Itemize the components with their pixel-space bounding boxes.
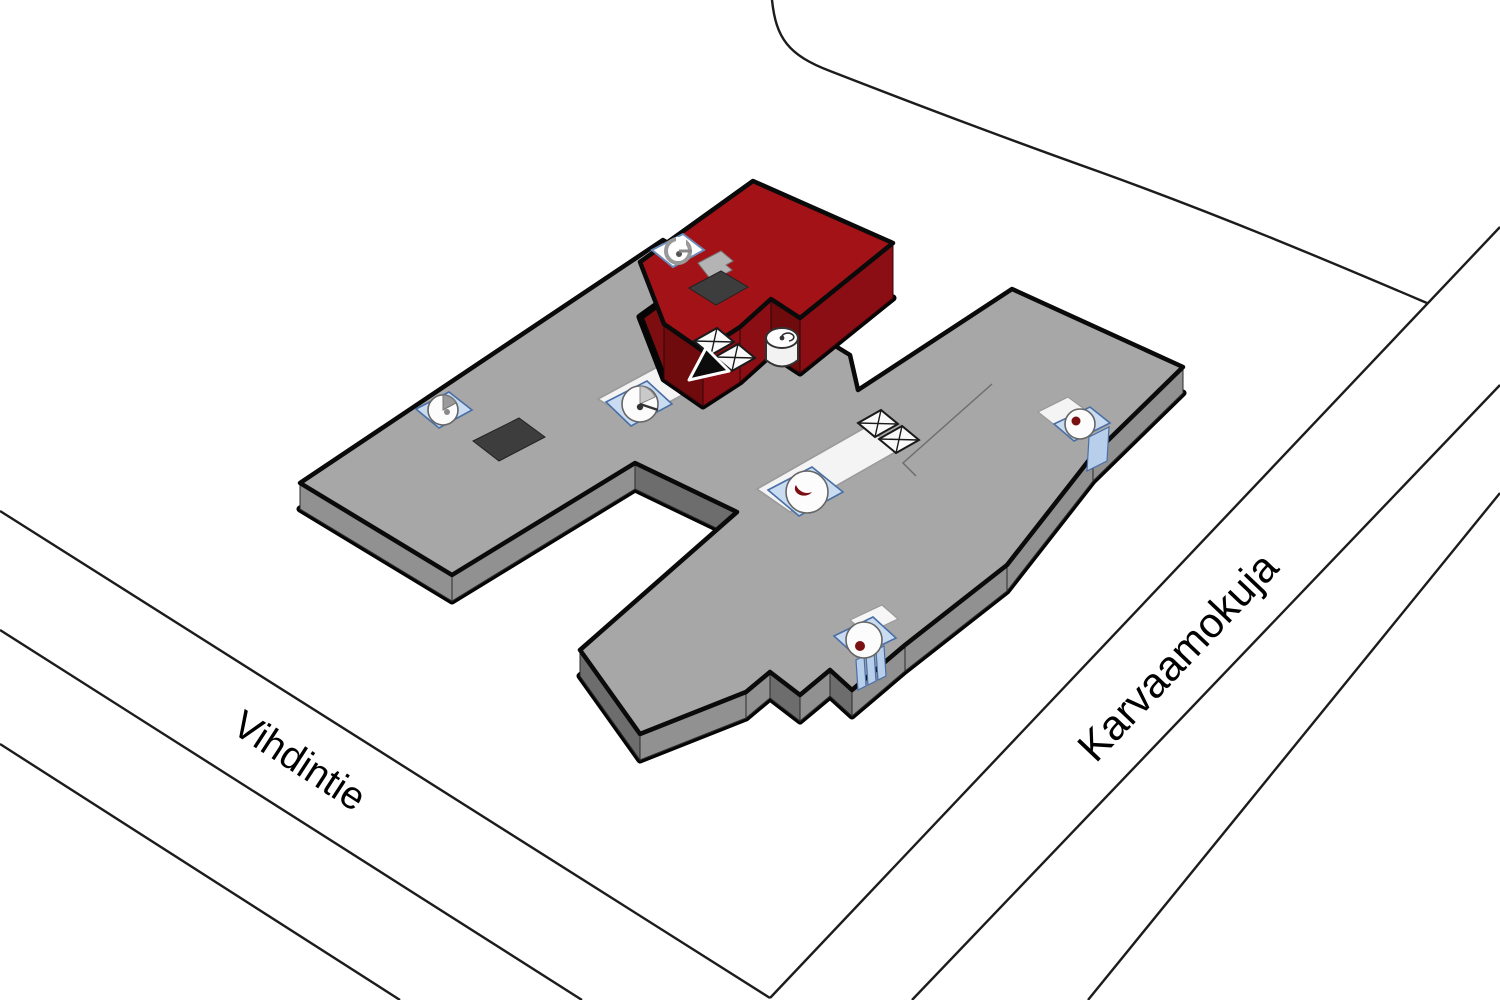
spiral-stairs-icon (766, 328, 798, 367)
street-label-vihdintie: Vihdintie (225, 703, 373, 820)
site-map[interactable]: Vihdintie Karvaamokuja (0, 0, 1500, 1000)
street-label-karvaamokuja: Karvaamokuja (1068, 543, 1287, 771)
map-canvas[interactable]: Vihdintie Karvaamokuja (0, 0, 1500, 1000)
